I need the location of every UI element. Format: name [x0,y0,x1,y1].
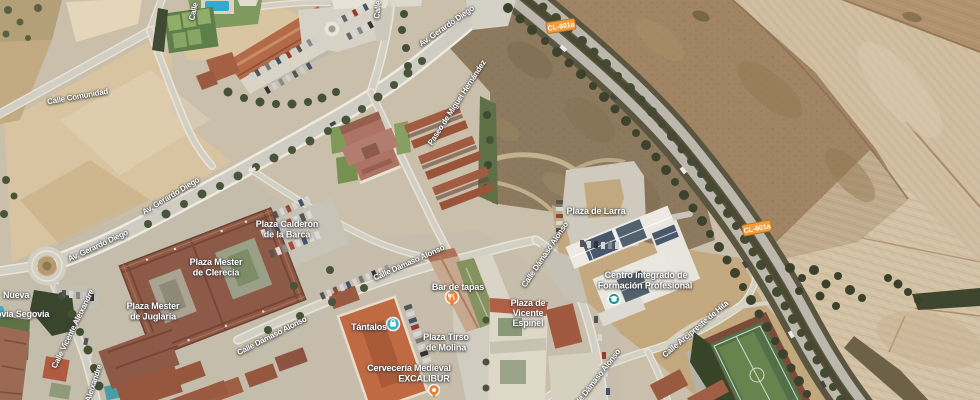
svg-text:EXCALIBUR: EXCALIBUR [398,374,450,384]
svg-text:Plaza Mester: Plaza Mester [190,257,243,267]
svg-text:de la Barca: de la Barca [264,230,312,240]
svg-text:Plaza de: Plaza de [511,298,546,308]
svg-text:de Juglaría: de Juglaría [130,312,177,322]
svg-text:ovia Segovia: ovia Segovia [0,309,50,319]
svg-text:Vicente: Vicente [513,308,544,318]
svg-text:de Clerecía: de Clerecía [193,268,241,278]
svg-text:de Molina: de Molina [426,343,467,353]
svg-text:Centro Integrado de: Centro Integrado de [605,270,688,280]
svg-text:Espinel: Espinel [513,318,544,328]
svg-text:Cervecería Medieval: Cervecería Medieval [367,363,451,373]
svg-text:Plaza de Larra: Plaza de Larra [567,206,627,216]
svg-text:Formación Profesional: Formación Profesional [598,281,692,291]
svg-text:Plaza Tirso: Plaza Tirso [423,332,469,342]
svg-text:Calle: Calle [372,0,383,19]
svg-text:Tántalos: Tántalos [351,322,387,332]
svg-text:Bar de tapas: Bar de tapas [432,282,484,292]
svg-text:Plaza Calderón: Plaza Calderón [256,219,318,229]
svg-text:Plaza Mester: Plaza Mester [127,301,180,311]
svg-text:Nueva: Nueva [3,290,30,300]
